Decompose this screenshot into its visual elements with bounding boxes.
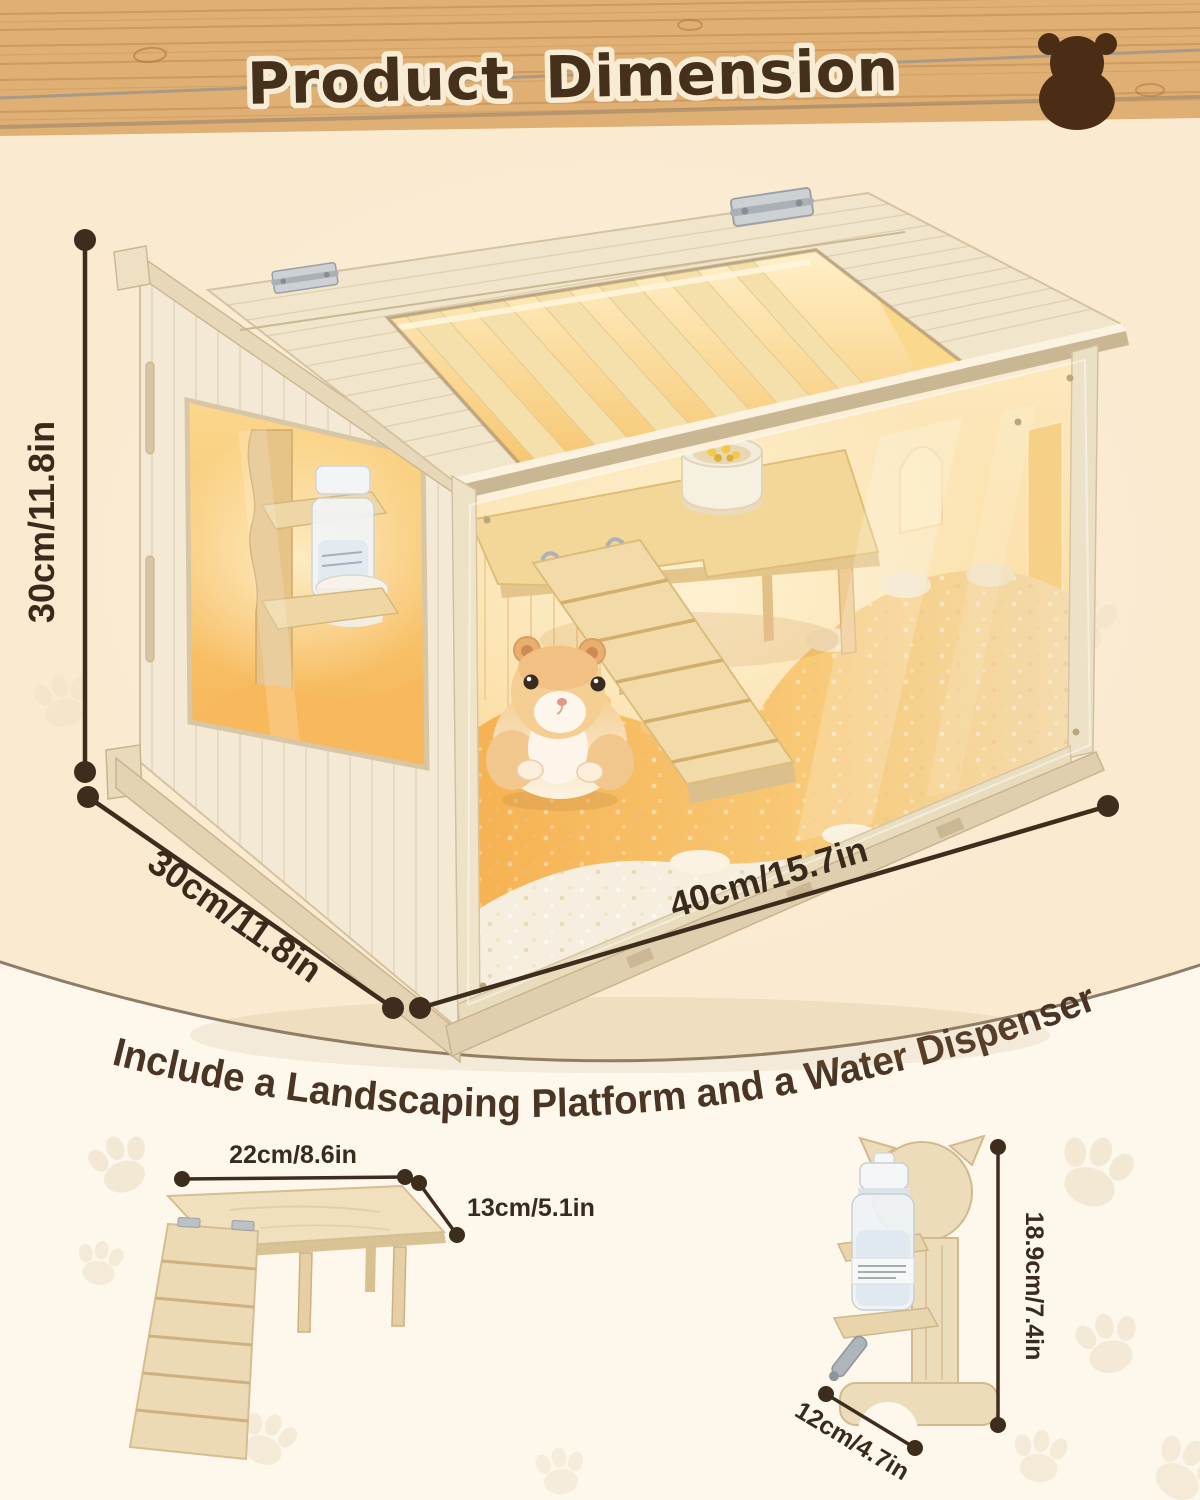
gable-tab [114,246,150,290]
hinge-icon [232,1220,254,1230]
vent-slot [146,362,154,454]
infographic-svg: Include a Landscaping Platform and a Wat… [0,0,1200,1500]
vent-slot [146,556,154,662]
platform-width-line [182,1177,405,1179]
platform-depth-label: 13cm/5.1in [467,1194,595,1222]
product-dimension-infographic: Include a Landscaping Platform and a Wat… [0,0,1200,1500]
bottle-cap [316,466,370,494]
platform-leg [392,1247,406,1326]
bear-icon [1038,33,1117,130]
height-dimension-label: 30cm/11.8in [21,421,62,623]
cage-shadow [190,997,1050,1073]
platform-leg [365,1243,376,1292]
hinge-icon [178,1217,200,1227]
dispenser-height-label: 18.9cm/7.4in [1020,1212,1048,1361]
bottle-cap [860,1163,908,1189]
platform-width-label: 22cm/8.6in [229,1141,357,1169]
header-band: Product Dimension [0,0,1200,136]
platform-leg [298,1253,312,1332]
page-title: Product Dimension [246,36,899,118]
